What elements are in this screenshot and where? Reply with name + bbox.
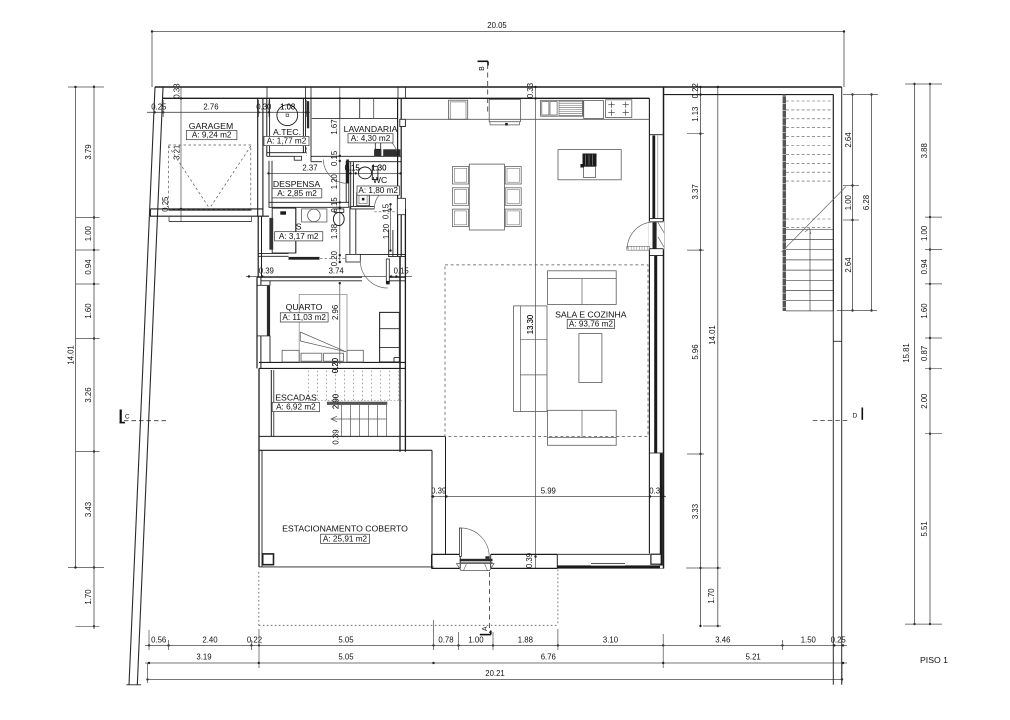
svg-text:2.76: 2.76	[203, 103, 218, 112]
svg-text:1.13: 1.13	[691, 107, 700, 122]
svg-text:1.50: 1.50	[801, 635, 817, 644]
svg-text:20.21: 20.21	[485, 669, 505, 678]
svg-text:3.46: 3.46	[715, 635, 730, 644]
svg-text:PISO 1: PISO 1	[920, 655, 948, 665]
svg-text:ESCADAS: ESCADAS	[275, 393, 317, 403]
svg-text:3.79: 3.79	[84, 144, 93, 159]
svg-text:A.TEC.: A.TEC.	[273, 127, 301, 137]
svg-text:0.39: 0.39	[525, 553, 534, 568]
svg-text:1.88: 1.88	[518, 635, 533, 644]
svg-text:3.88: 3.88	[920, 143, 929, 158]
svg-text:A: 6,92 m2: A: 6,92 m2	[276, 403, 316, 412]
svg-text:0.39: 0.39	[331, 429, 340, 444]
svg-text:1.60: 1.60	[84, 303, 93, 319]
svg-text:0.33: 0.33	[173, 83, 182, 98]
svg-text:0.39: 0.39	[431, 486, 446, 495]
svg-text:2.64: 2.64	[844, 132, 853, 148]
svg-text:3.10: 3.10	[603, 635, 619, 644]
svg-text:0.33: 0.33	[526, 83, 535, 98]
svg-text:A: 1,77 m2: A: 1,77 m2	[267, 137, 307, 146]
svg-text:5.21: 5.21	[746, 653, 761, 662]
svg-text:1.38: 1.38	[330, 224, 339, 239]
svg-text:A: 3,17 m2: A: 3,17 m2	[279, 232, 319, 241]
svg-text:1.67: 1.67	[330, 119, 339, 134]
svg-text:S: S	[296, 221, 302, 231]
svg-text:0.20: 0.20	[331, 357, 340, 373]
svg-text:QUARTO: QUARTO	[286, 302, 323, 312]
svg-text:0.22: 0.22	[691, 83, 700, 98]
svg-text:1.60: 1.60	[920, 303, 929, 319]
svg-text:0.15: 0.15	[382, 203, 391, 219]
svg-text:14.01: 14.01	[708, 325, 717, 345]
svg-text:14.01: 14.01	[67, 345, 76, 365]
svg-text:3.26: 3.26	[84, 387, 93, 402]
svg-text:3.33: 3.33	[691, 504, 700, 519]
svg-text:B: B	[479, 66, 486, 71]
svg-text:GARAGEM: GARAGEM	[189, 121, 233, 131]
svg-text:2.64: 2.64	[844, 257, 853, 273]
svg-text:1.20: 1.20	[382, 223, 391, 239]
svg-text:3.19: 3.19	[196, 653, 211, 662]
svg-text:15.81: 15.81	[902, 343, 911, 363]
svg-text:1.70: 1.70	[84, 589, 93, 605]
svg-text:WC: WC	[373, 175, 387, 185]
svg-text:DESPENSA: DESPENSA	[273, 179, 321, 189]
svg-text:5.05: 5.05	[338, 653, 354, 662]
svg-text:0.15: 0.15	[330, 150, 339, 166]
svg-text:1.00: 1.00	[920, 225, 929, 241]
svg-text:0.78: 0.78	[438, 635, 453, 644]
svg-text:A: 93,76 m2: A: 93,76 m2	[569, 320, 614, 329]
svg-text:6.28: 6.28	[862, 195, 871, 210]
svg-text:1.30: 1.30	[371, 163, 387, 172]
svg-text:5.99: 5.99	[541, 486, 556, 495]
svg-text:A: 9,24 m2: A: 9,24 m2	[192, 131, 232, 140]
svg-text:ESTACIONAMENTO COBERTO: ESTACIONAMENTO COBERTO	[282, 523, 408, 533]
svg-text:20.05: 20.05	[487, 21, 507, 30]
svg-text:A: A	[482, 626, 489, 631]
svg-text:1.08: 1.08	[280, 103, 295, 112]
svg-text:0.39: 0.39	[259, 266, 274, 275]
svg-text:2.90: 2.90	[332, 393, 341, 409]
svg-text:6.76: 6.76	[541, 653, 556, 662]
svg-text:0.56: 0.56	[151, 635, 166, 644]
svg-text:A: 1,80 m2: A: 1,80 m2	[358, 186, 398, 195]
svg-text:A: 11,03 m2: A: 11,03 m2	[282, 313, 326, 322]
svg-text:0.94: 0.94	[920, 259, 929, 275]
svg-text:3.74: 3.74	[329, 266, 345, 275]
svg-text:0.22: 0.22	[247, 635, 262, 644]
svg-text:SALA E COZINHA: SALA E COZINHA	[555, 310, 627, 320]
svg-text:LAVANDARIA: LAVANDARIA	[344, 124, 398, 134]
svg-text:5.05: 5.05	[338, 635, 354, 644]
svg-text:0.87: 0.87	[920, 346, 929, 361]
svg-text:2.37: 2.37	[302, 163, 317, 172]
svg-text:0.15: 0.15	[345, 163, 361, 172]
svg-text:0.94: 0.94	[84, 259, 93, 275]
svg-text:2.96: 2.96	[331, 305, 340, 320]
svg-text:D: D	[853, 413, 858, 420]
svg-text:3.43: 3.43	[84, 502, 93, 517]
svg-text:0.15: 0.15	[394, 266, 410, 275]
svg-text:1.00: 1.00	[468, 635, 484, 644]
svg-text:C: C	[125, 413, 130, 420]
svg-text:5.51: 5.51	[920, 521, 929, 536]
svg-text:3.21: 3.21	[173, 145, 182, 160]
svg-text:A: 2,85 m2: A: 2,85 m2	[277, 189, 317, 198]
svg-text:1.00: 1.00	[844, 194, 853, 210]
svg-text:2.40: 2.40	[202, 635, 218, 644]
svg-text:2.00: 2.00	[920, 393, 929, 409]
svg-text:13.30: 13.30	[526, 314, 535, 334]
svg-text:3.37: 3.37	[691, 184, 700, 199]
svg-text:A: 4,30 m2: A: 4,30 m2	[351, 134, 391, 143]
svg-text:5.96: 5.96	[691, 344, 700, 359]
svg-text:1.70: 1.70	[707, 588, 716, 604]
svg-text:1.00: 1.00	[84, 225, 93, 241]
svg-text:A: 25,91 m2: A: 25,91 m2	[323, 534, 368, 543]
